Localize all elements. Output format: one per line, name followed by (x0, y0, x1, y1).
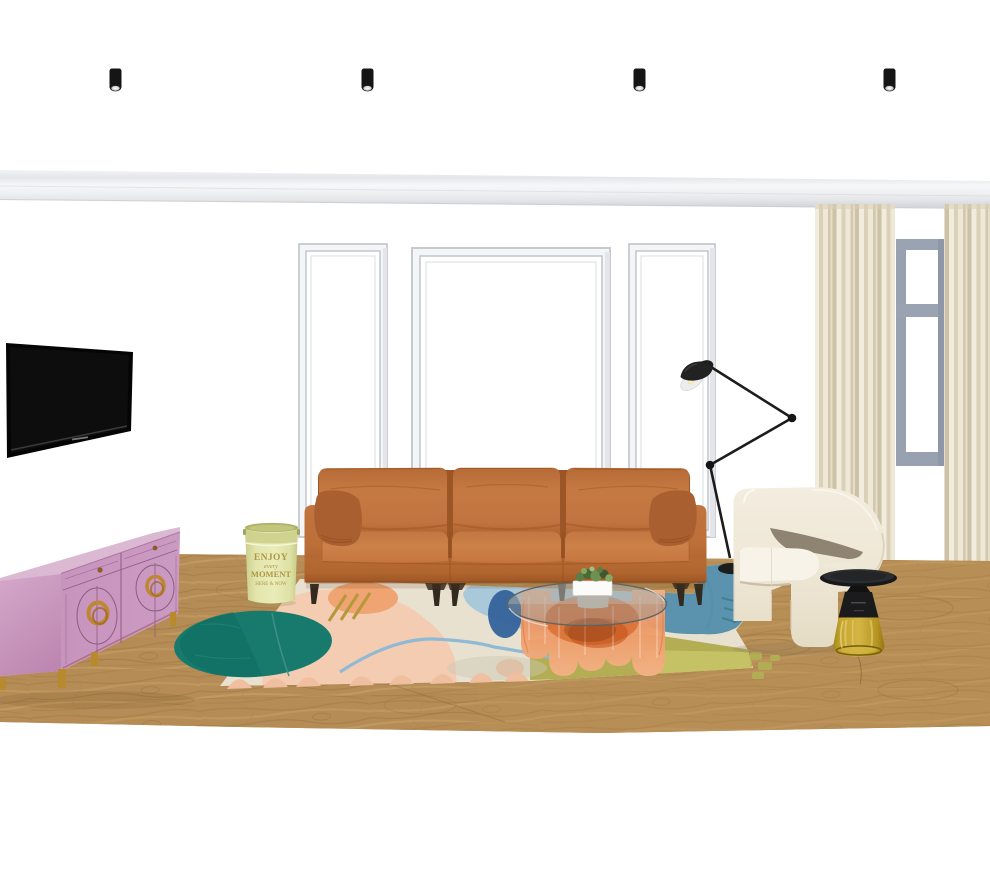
svg-text:HERE & NOW: HERE & NOW (255, 582, 287, 587)
svg-text:MOMENT: MOMENT (251, 569, 291, 579)
svg-text:ENJOY: ENJOY (254, 553, 288, 563)
